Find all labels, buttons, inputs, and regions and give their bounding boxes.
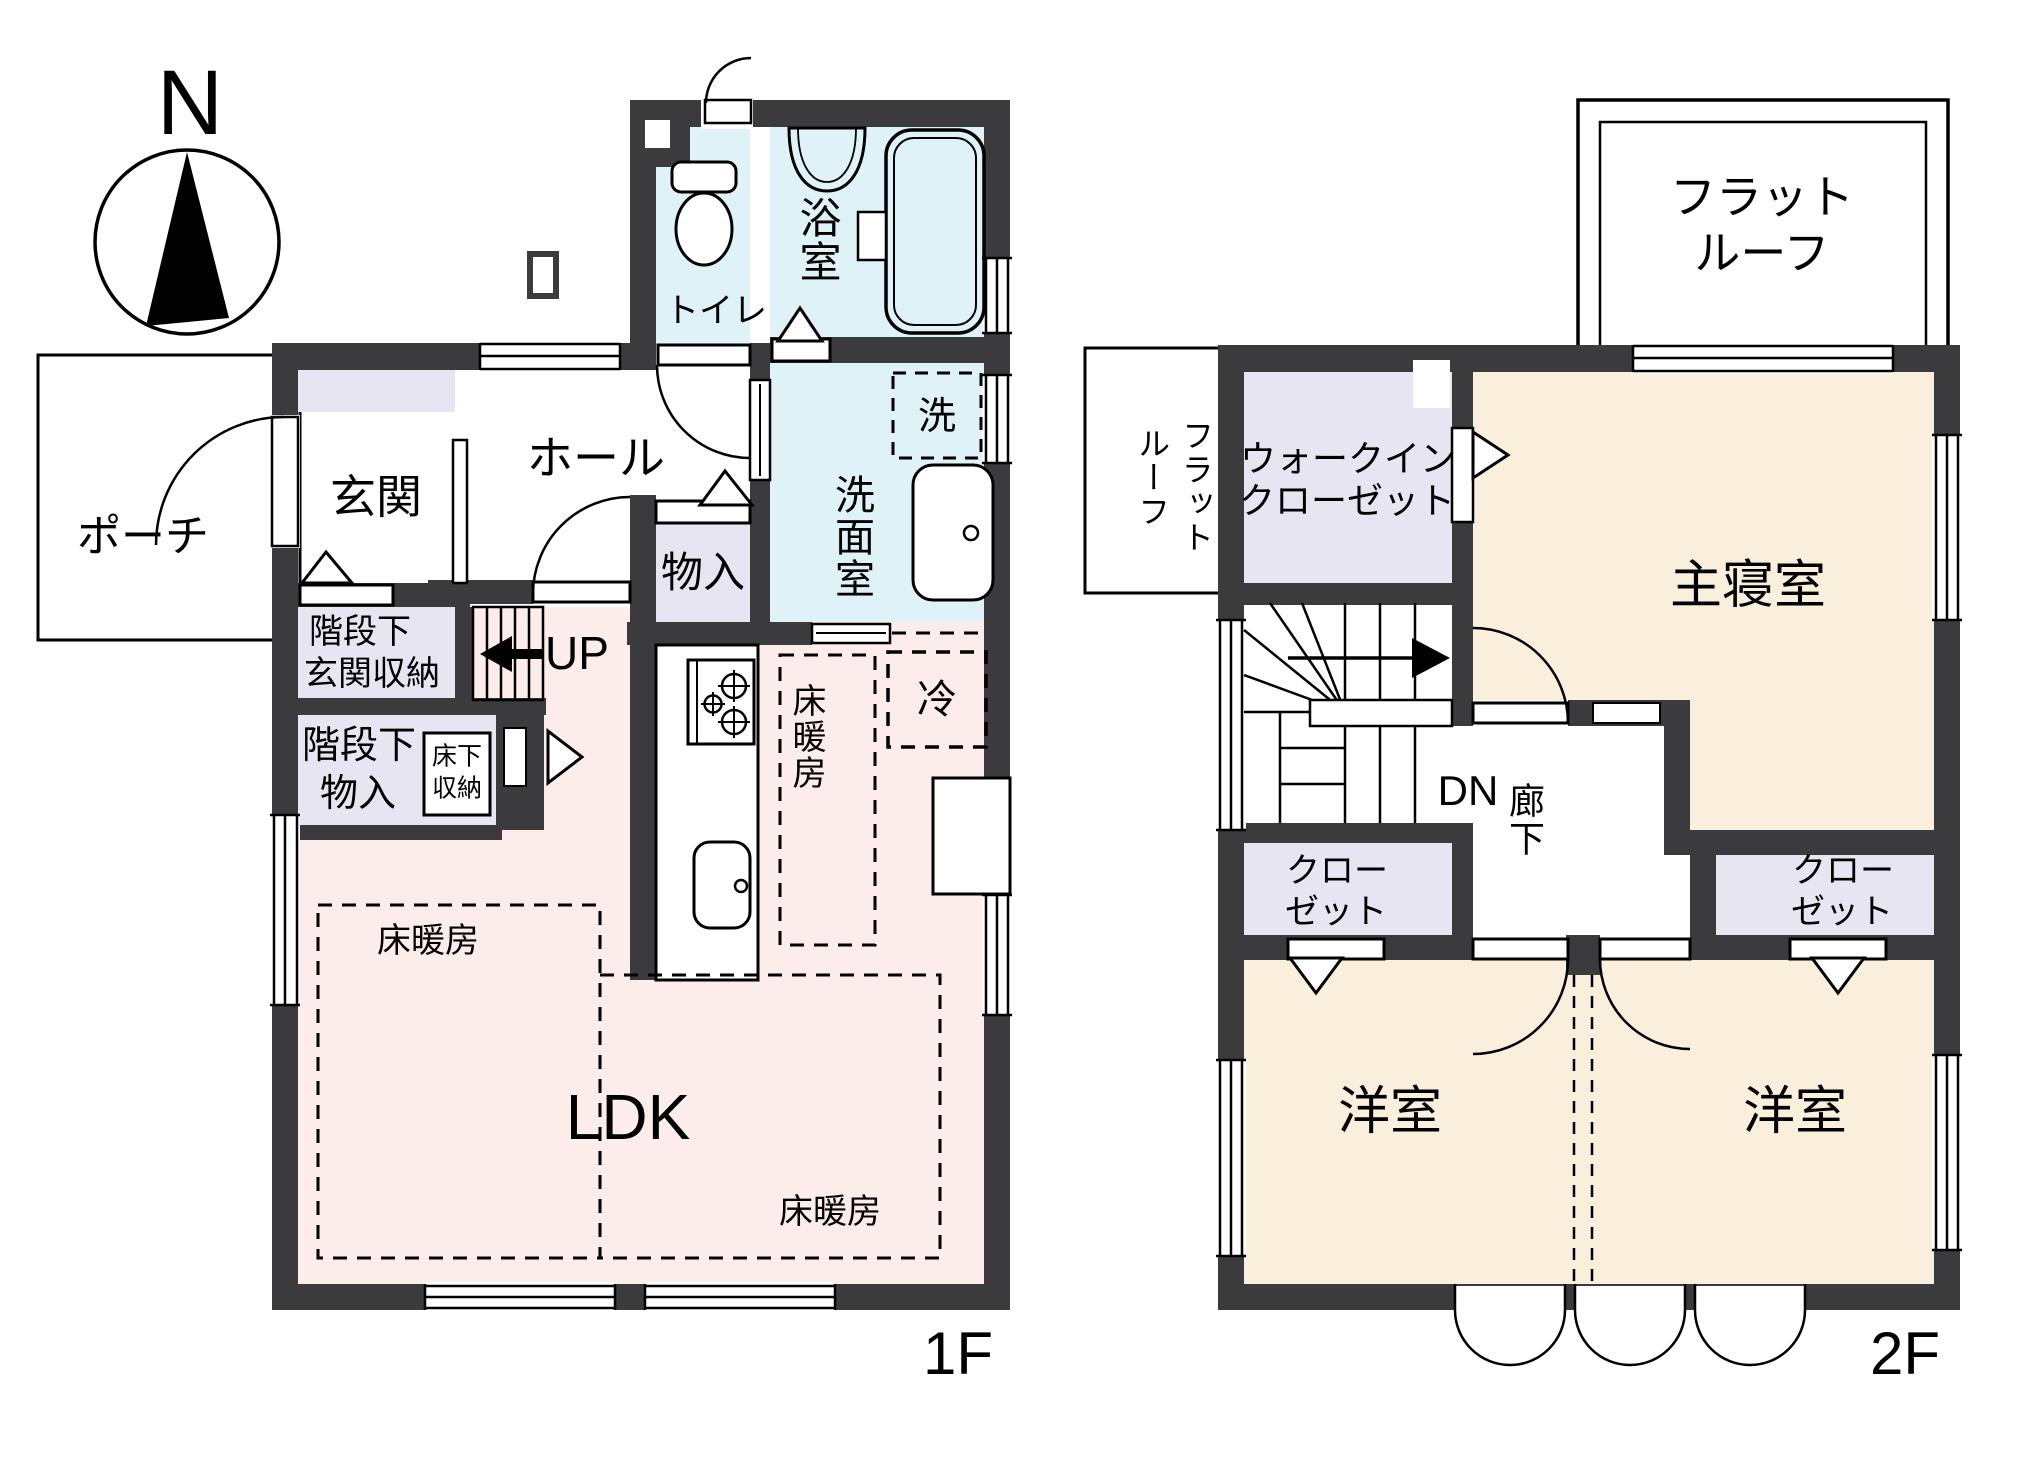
window-top-hall	[480, 341, 620, 372]
label-floor-heating-1: 床暖房	[377, 924, 479, 958]
label-understair-closet-1: 階段下	[302, 727, 416, 765]
kitchen-counter	[656, 645, 758, 980]
label-wic-1: ウォークイン	[1240, 441, 1456, 477]
window-right-washroom	[982, 375, 1012, 463]
window-right-bath	[982, 258, 1012, 333]
window-left-ldk	[270, 815, 300, 1005]
window-right-ldk	[982, 895, 1012, 1015]
floor2-plan	[1085, 100, 1962, 1365]
stairs-down-arrow	[1412, 638, 1450, 678]
window-bottom-right	[645, 1282, 835, 1312]
label-ldk: LDK	[566, 1085, 691, 1149]
label-fridge: 冷	[917, 680, 957, 720]
label-closet-left-1: クロー	[1286, 854, 1388, 888]
label-bath: 浴室	[796, 196, 838, 284]
pipe-space	[645, 120, 670, 148]
label-underfloor-2: 収納	[432, 777, 482, 802]
label-floor-heating-3: 床暖房	[779, 1195, 881, 1229]
window-bottom-left	[425, 1282, 615, 1312]
window-right-bedroom	[1932, 435, 1962, 620]
label-flat-roof-side-2: ルーフ	[1136, 427, 1168, 529]
window-right-western	[1932, 1055, 1962, 1250]
pillar-inset	[533, 257, 553, 293]
label-porch: ポーチ	[77, 515, 209, 559]
label-hall-closet: 物入	[661, 552, 745, 594]
compass-north-label: N	[157, 57, 223, 149]
master-bedroom	[1452, 372, 1934, 700]
label-floor1: 1F	[923, 1324, 993, 1384]
washroom-vanity	[913, 465, 993, 600]
entrance-cabinet	[298, 370, 455, 412]
label-toilet: トイレ	[665, 294, 767, 328]
toilet-window	[701, 58, 753, 129]
wall-niche	[1413, 360, 1450, 408]
cupboard	[933, 778, 1010, 894]
porch-area	[38, 355, 300, 640]
label-entrance: 玄関	[330, 474, 422, 520]
label-understair-entrance-2: 玄関収納	[304, 657, 440, 691]
floorplan-page: N ポーチ 玄関 ホール トイレ 浴室 洗 洗面室 物入 階段下 玄関収納 階段…	[0, 0, 2020, 1465]
label-flat-roof-side-1: フラット	[1180, 419, 1212, 555]
window-left-western	[1216, 1060, 1246, 1256]
compass-icon	[95, 150, 279, 334]
label-laundry: 洗	[918, 398, 956, 436]
label-flat-roof-top-1: フラット	[1670, 174, 1854, 220]
window-left-stairs	[1216, 620, 1246, 830]
label-western-right: 洋室	[1743, 1086, 1847, 1138]
label-floor-heating-2: 床暖房	[789, 683, 823, 791]
label-closet-right-1: クロー	[1792, 854, 1894, 888]
label-understair-entrance-1: 階段下	[309, 615, 411, 649]
washroom-slider	[750, 380, 770, 480]
stairs-2f	[1244, 603, 1452, 823]
label-stairs-down: DN	[1438, 770, 1499, 812]
label-closet-right-2: ゼット	[1791, 895, 1893, 929]
partition-entrance-hall	[453, 440, 467, 583]
label-closet-left-2: ゼット	[1285, 895, 1387, 929]
label-floor2: 2F	[1870, 1324, 1940, 1384]
label-western-left: 洋室	[1338, 1086, 1442, 1138]
label-stairs-up: UP	[545, 630, 609, 676]
label-underfloor-1: 床下	[432, 745, 482, 770]
floor1-plan	[38, 58, 1012, 1312]
label-washroom: 洗面室	[831, 474, 871, 600]
label-wic-2: クローゼット	[1239, 483, 1455, 519]
casement-windows	[1455, 1284, 1805, 1365]
toilet-fixture	[672, 162, 736, 265]
label-understair-closet-2: 物入	[320, 775, 396, 813]
label-hall: ホール	[527, 435, 665, 481]
entrance-step	[300, 552, 393, 605]
window-top-bedroom	[1633, 343, 1893, 374]
label-flat-roof-top-2: ルーフ	[1694, 230, 1829, 276]
label-corridor: 廊下	[1506, 782, 1542, 858]
label-master-bedroom: 主寝室	[1670, 560, 1826, 612]
